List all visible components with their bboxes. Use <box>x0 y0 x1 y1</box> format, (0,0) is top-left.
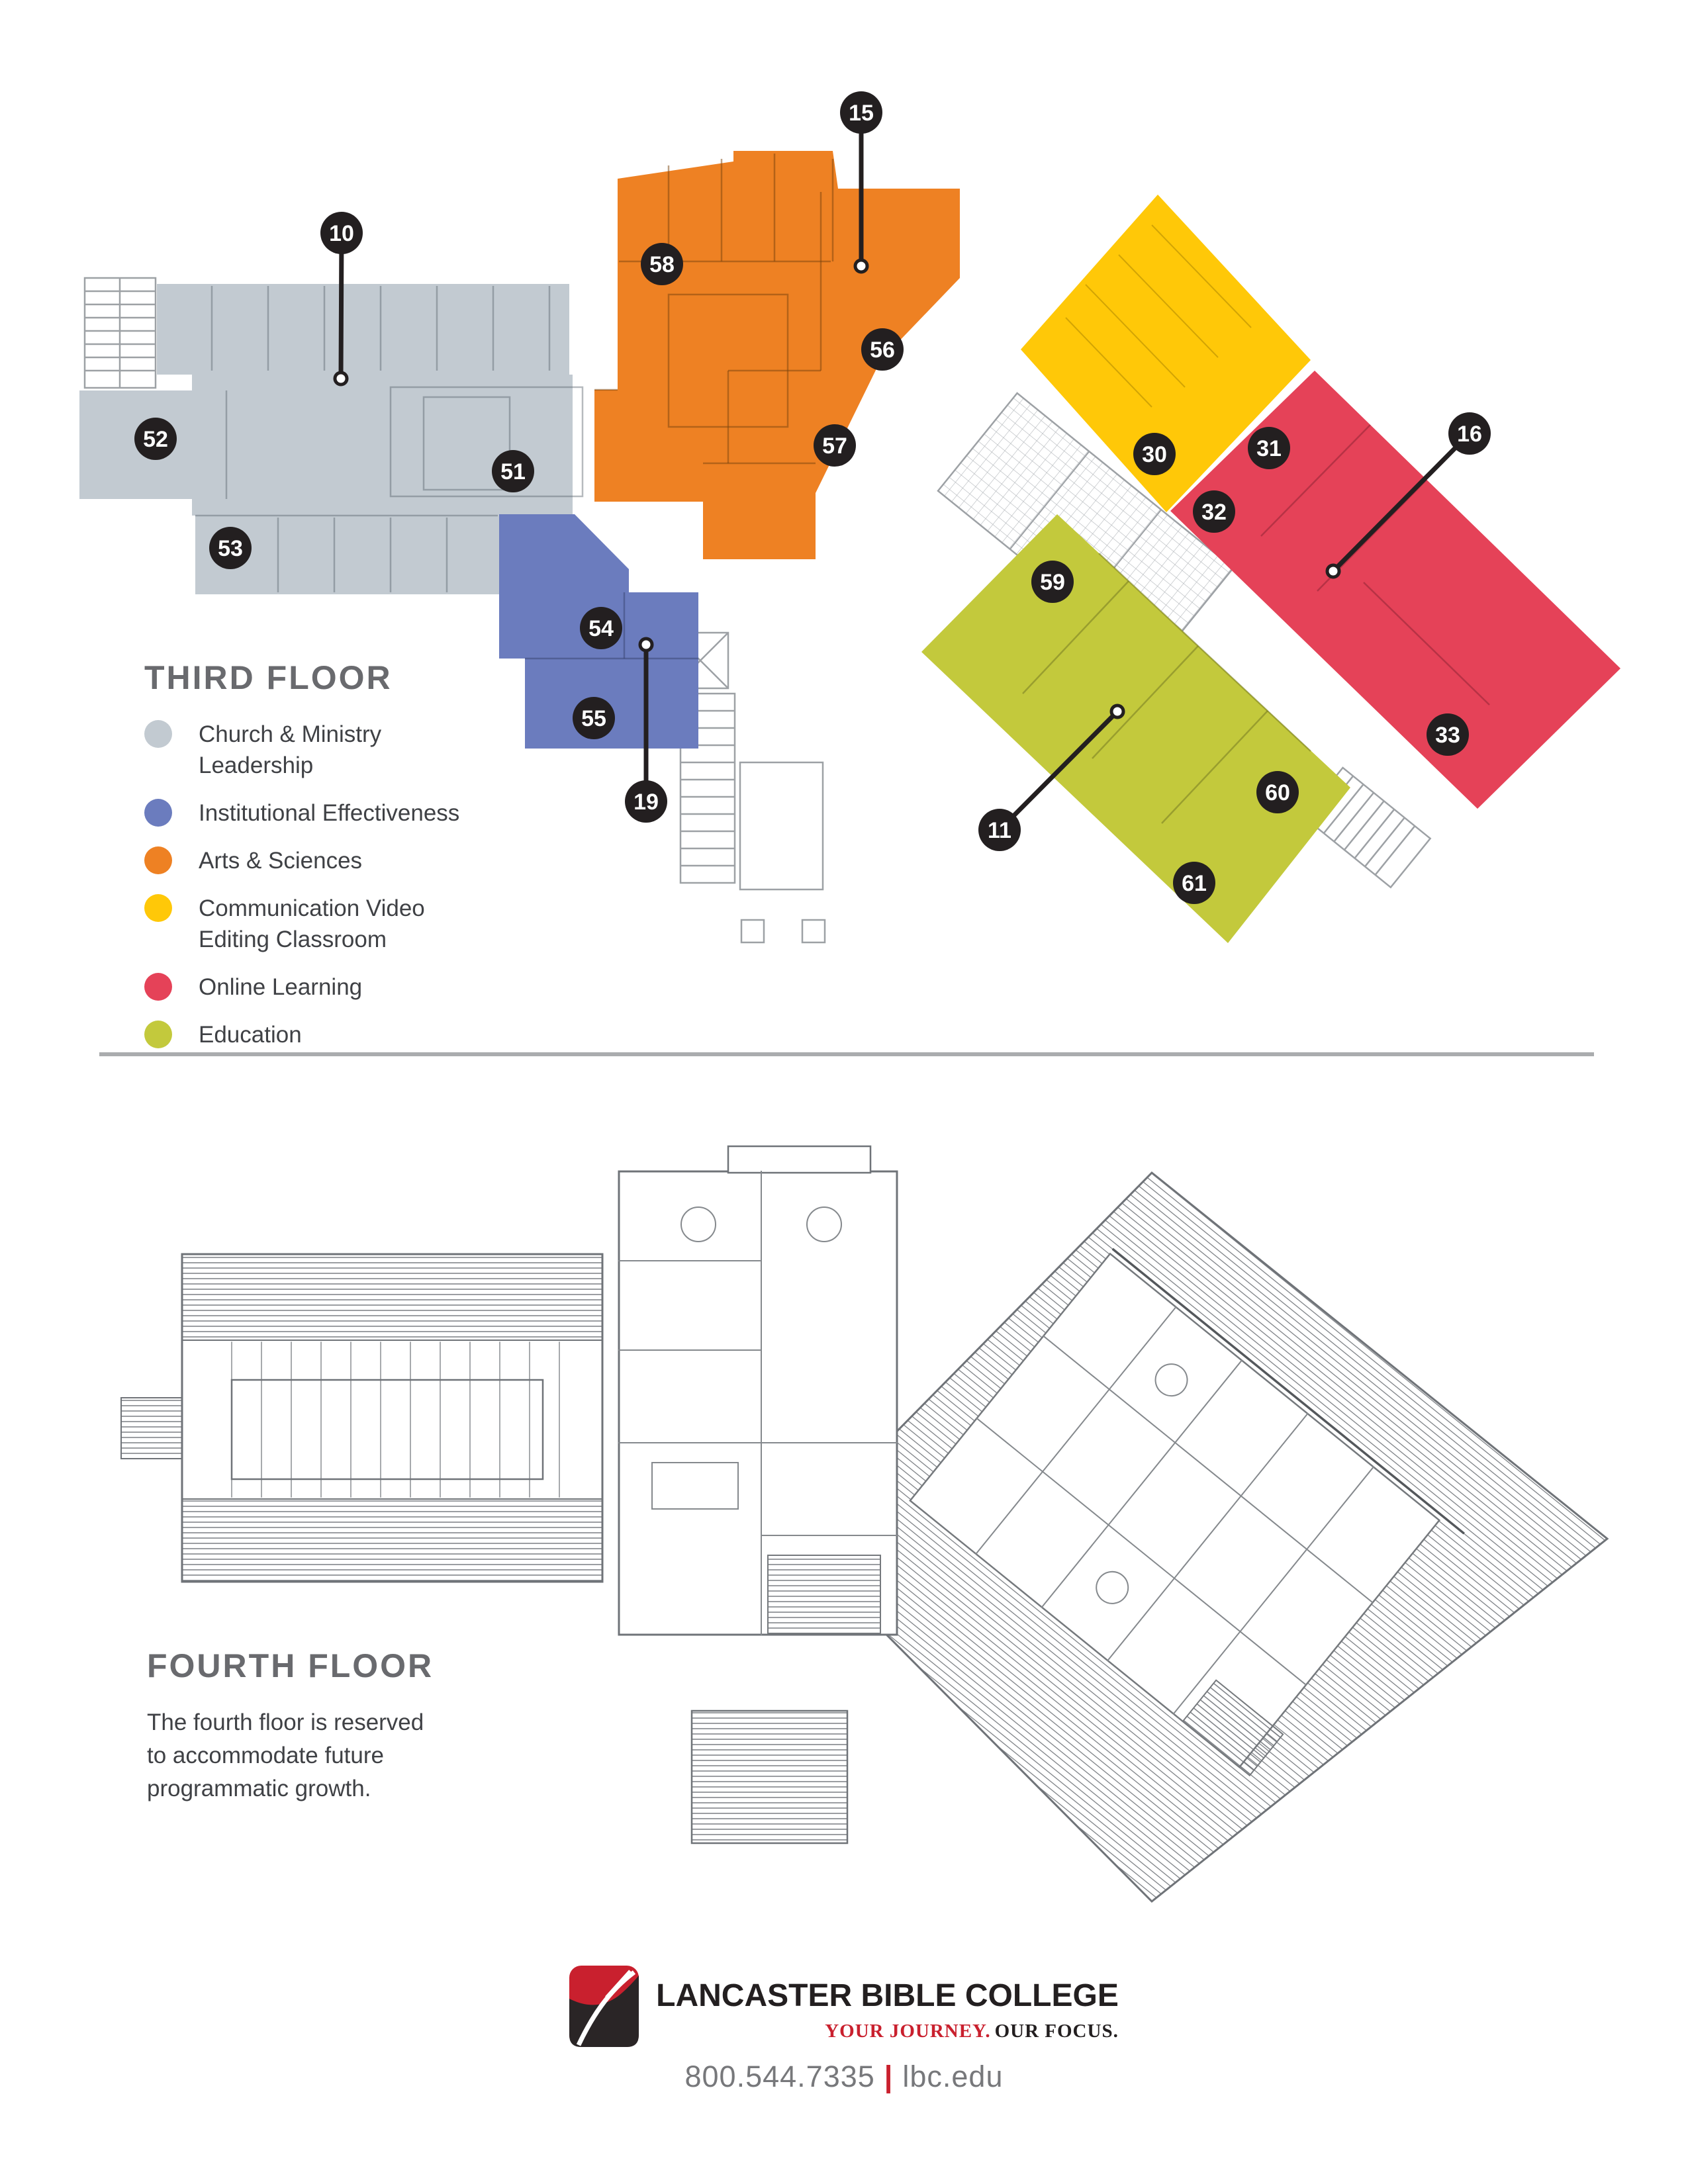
footer: LANCASTER BIBLE COLLEGE YOUR JOURNEY.OUR… <box>0 1966 1688 2047</box>
website: lbc.edu <box>902 2060 1003 2093</box>
legend-label: Education <box>199 1019 489 1050</box>
description-line: The fourth floor is reserved <box>147 1706 451 1739</box>
room-marker-label-11: 11 <box>988 818 1011 843</box>
legend-item-1: Institutional Effectiveness <box>144 797 489 829</box>
legend-label: Online Learning <box>199 972 489 1003</box>
contact-separator: | <box>875 2060 903 2093</box>
legend-color-dot <box>144 799 172 827</box>
legend-color-dot <box>144 973 172 1001</box>
marker-leader-dot-15 <box>855 260 867 272</box>
lbc-logo-icon <box>569 1966 639 2047</box>
legend-label: Communication Video Editing Classroom <box>199 893 489 955</box>
room-marker-label-56: 56 <box>870 338 895 363</box>
fourth-floor-title: FOURTH FLOOR <box>147 1647 434 1685</box>
room-marker-label-31: 31 <box>1256 436 1282 461</box>
section-divider <box>99 1052 1594 1056</box>
tagline-our-focus: OUR FOCUS. <box>995 2021 1119 2042</box>
room-marker-label-61: 61 <box>1182 871 1207 896</box>
phone-number: 800.544.7335 <box>685 2060 875 2093</box>
description-line: to accommodate future <box>147 1739 451 1772</box>
third-floor-legend: Church & Ministry LeadershipInstitutiona… <box>144 719 489 1067</box>
tagline-your-journey: YOUR JOURNEY. <box>825 2021 990 2042</box>
legend-label: Institutional Effectiveness <box>199 797 489 829</box>
room-marker-label-53: 53 <box>218 536 243 561</box>
third-floor-title: THIRD FLOOR <box>144 659 393 697</box>
legend-item-2: Arts & Sciences <box>144 845 489 876</box>
region-arts-sciences <box>594 151 960 559</box>
legend-item-0: Church & Ministry Leadership <box>144 719 489 781</box>
legend-item-4: Online Learning <box>144 972 489 1003</box>
room-marker-label-51: 51 <box>500 459 526 484</box>
room-marker-label-15: 15 <box>849 101 874 126</box>
room-marker-label-16: 16 <box>1457 422 1482 447</box>
brand-block: LANCASTER BIBLE COLLEGE YOUR JOURNEY.OUR… <box>656 1978 1119 2042</box>
room-marker-label-30: 30 <box>1142 442 1167 467</box>
brand-tagline: YOUR JOURNEY.OUR FOCUS. <box>656 2021 1119 2042</box>
legend-label: Church & Ministry Leadership <box>199 719 489 781</box>
fourth-right-wing <box>791 1173 1607 1901</box>
description-line: programmatic growth. <box>147 1772 451 1805</box>
room-marker-label-52: 52 <box>143 427 168 452</box>
room-marker-label-58: 58 <box>649 252 675 277</box>
legend-item-3: Communication Video Editing Classroom <box>144 893 489 955</box>
marker-leader-dot-11 <box>1111 705 1123 717</box>
fourth-center-block <box>619 1146 897 1635</box>
marker-leader-dot-10 <box>335 373 347 385</box>
room-marker-label-32: 32 <box>1201 500 1227 525</box>
floor-plan-drawing: 1015585657525153545519303132163359116061 <box>0 0 1688 2184</box>
legend-color-dot <box>144 720 172 748</box>
room-marker-label-60: 60 <box>1265 780 1290 805</box>
room-marker-label-54: 54 <box>588 616 614 641</box>
legend-color-dot <box>144 894 172 922</box>
room-marker-label-55: 55 <box>581 706 606 731</box>
marker-leader-dot-16 <box>1327 565 1339 577</box>
marker-leader-dot-19 <box>640 639 652 651</box>
legend-item-5: Education <box>144 1019 489 1050</box>
brand-name: LANCASTER BIBLE COLLEGE <box>656 1978 1119 2014</box>
room-marker-label-33: 33 <box>1435 723 1460 748</box>
legend-color-dot <box>144 846 172 874</box>
page: 1015585657525153545519303132163359116061 <box>0 0 1688 2184</box>
room-marker-label-19: 19 <box>633 790 659 815</box>
stairwell-top-left <box>85 278 156 388</box>
marker-leader-10 <box>341 233 342 379</box>
fourth-stair-tower <box>692 1711 847 1843</box>
fourth-floor-description: The fourth floor is reservedto accommoda… <box>147 1706 451 1805</box>
room-marker-label-59: 59 <box>1040 570 1065 595</box>
legend-color-dot <box>144 1021 172 1048</box>
legend-label: Arts & Sciences <box>199 845 489 876</box>
room-marker-label-10: 10 <box>329 221 354 246</box>
fourth-left-wing <box>121 1254 602 1582</box>
room-marker-label-57: 57 <box>822 433 847 459</box>
contact-line: 800.544.7335|lbc.edu <box>0 2060 1688 2094</box>
